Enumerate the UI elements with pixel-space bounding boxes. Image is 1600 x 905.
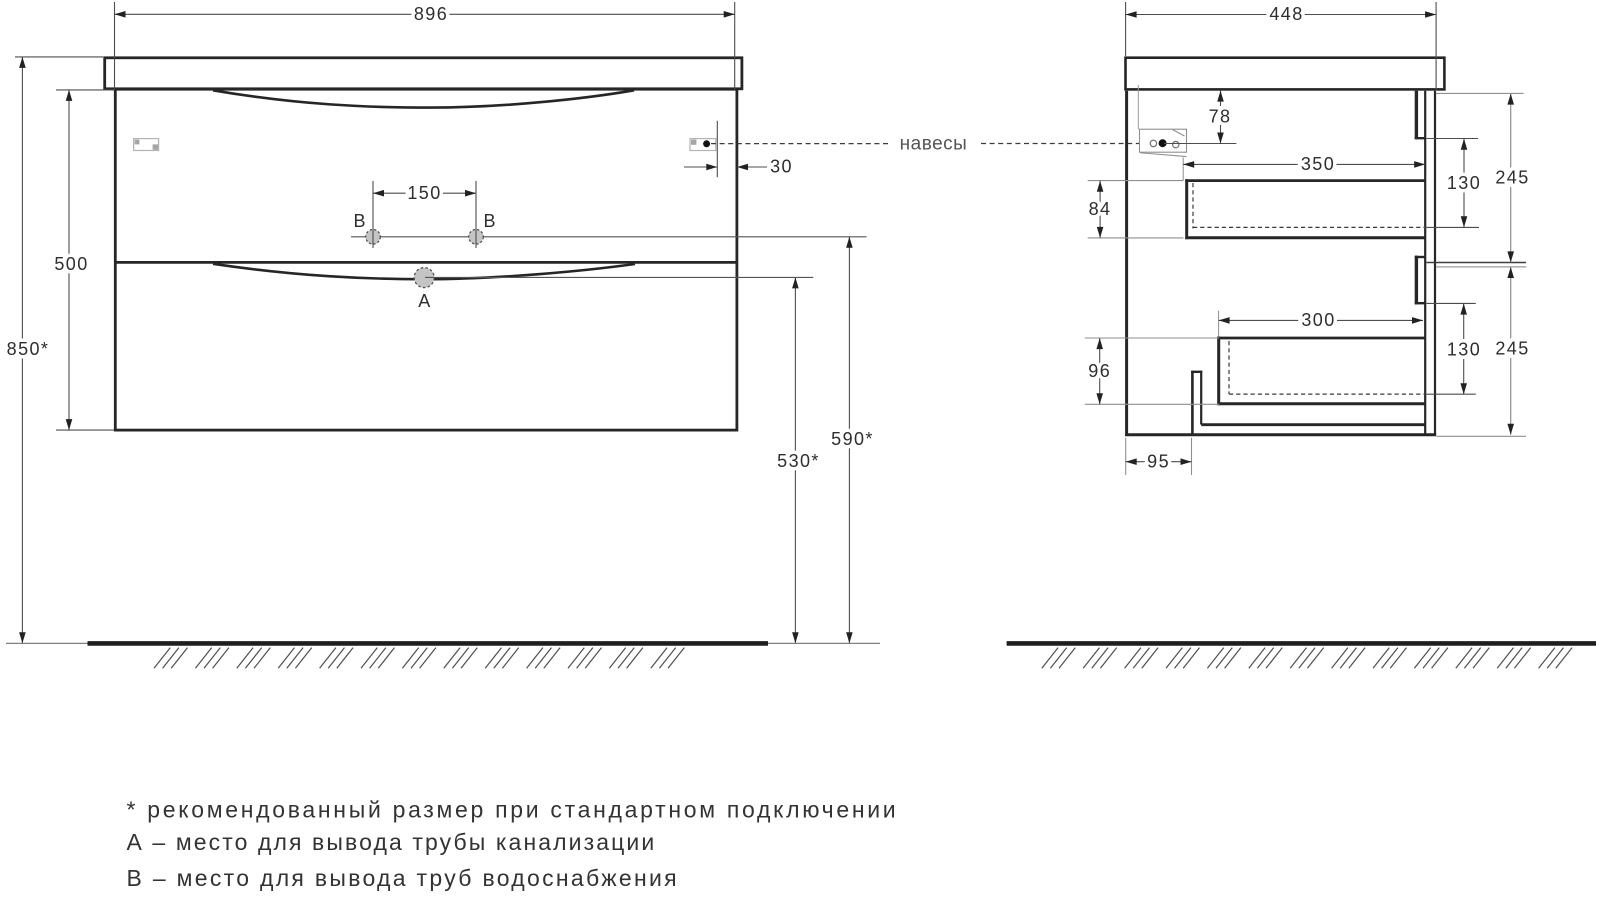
svg-text:В: В [353, 211, 365, 231]
svg-text:300: 300 [1301, 310, 1335, 330]
svg-text:78: 78 [1209, 107, 1232, 127]
svg-text:590*: 590* [831, 429, 874, 449]
svg-text:448: 448 [1269, 4, 1303, 24]
svg-text:530*: 530* [777, 451, 820, 471]
svg-text:* рекомендованный размер при с: * рекомендованный размер при стандартном… [127, 797, 899, 823]
svg-text:навесы: навесы [900, 134, 968, 155]
svg-text:245: 245 [1495, 168, 1529, 188]
svg-text:130: 130 [1447, 173, 1481, 193]
svg-text:А – место для вывода трубы кан: А – место для вывода трубы канализации [127, 829, 657, 855]
svg-text:350: 350 [1301, 154, 1335, 174]
svg-text:В: В [483, 211, 495, 231]
svg-text:896: 896 [414, 4, 448, 24]
svg-text:150: 150 [407, 183, 441, 203]
svg-text:96: 96 [1088, 361, 1111, 381]
svg-text:В – место для вывода труб водо: В – место для вывода труб водоснабжения [127, 865, 679, 891]
svg-text:850*: 850* [7, 339, 50, 359]
svg-text:245: 245 [1495, 338, 1529, 358]
svg-text:500: 500 [54, 254, 88, 274]
svg-text:А: А [418, 291, 430, 311]
svg-text:30: 30 [770, 157, 793, 177]
svg-text:95: 95 [1147, 451, 1170, 471]
svg-text:130: 130 [1447, 340, 1481, 360]
svg-text:84: 84 [1089, 199, 1112, 219]
